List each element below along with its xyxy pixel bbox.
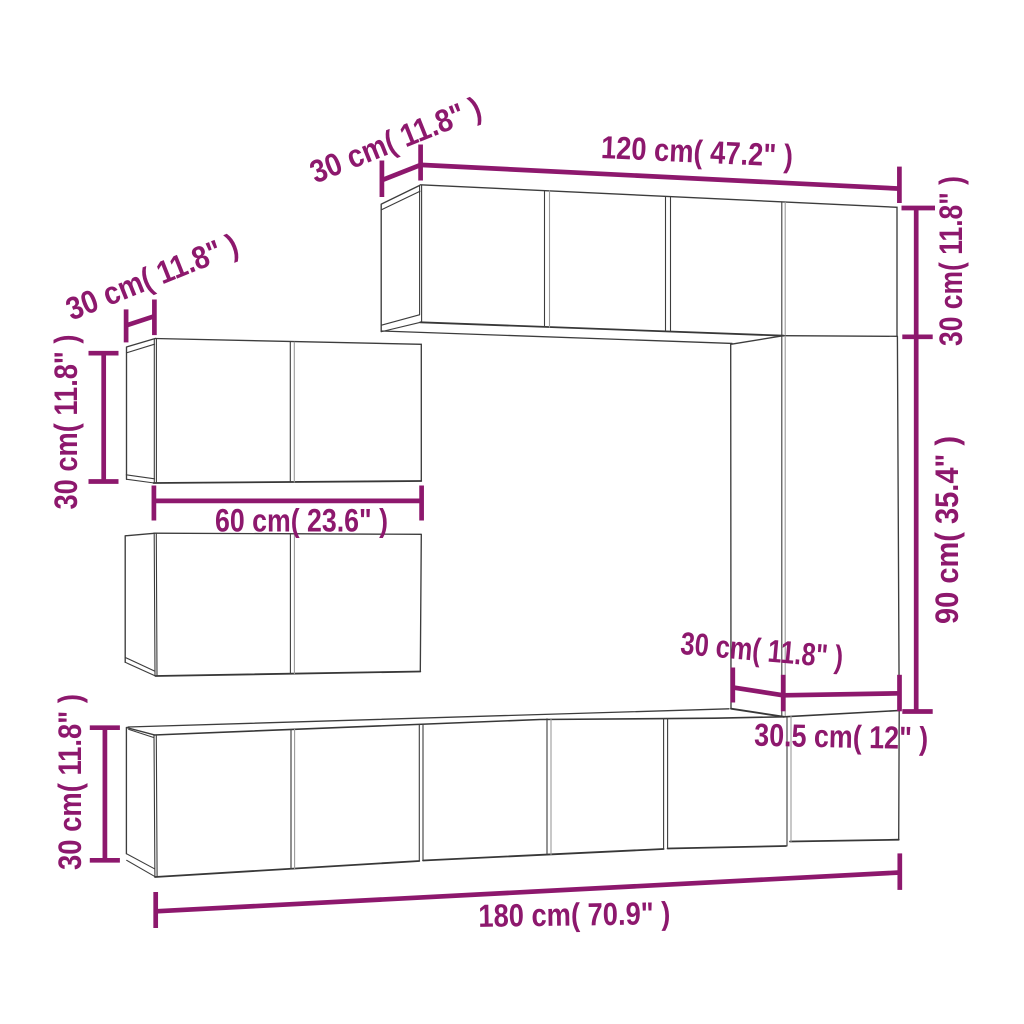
svg-text:30 cm( 11.8" ): 30 cm( 11.8" ) <box>48 335 84 510</box>
svg-text:30 cm( 11.8" ): 30 cm( 11.8" ) <box>52 694 88 870</box>
svg-text:90 cm( 35.4" ): 90 cm( 35.4" ) <box>929 436 965 624</box>
svg-text:30.5 cm( 12" ): 30.5 cm( 12" ) <box>754 717 929 757</box>
svg-text:180 cm( 70.9" ): 180 cm( 70.9" ) <box>478 895 670 934</box>
svg-text:30 cm( 11.8" ): 30 cm( 11.8" ) <box>933 176 969 346</box>
svg-text:60 cm( 23.6" ): 60 cm( 23.6" ) <box>215 503 388 539</box>
